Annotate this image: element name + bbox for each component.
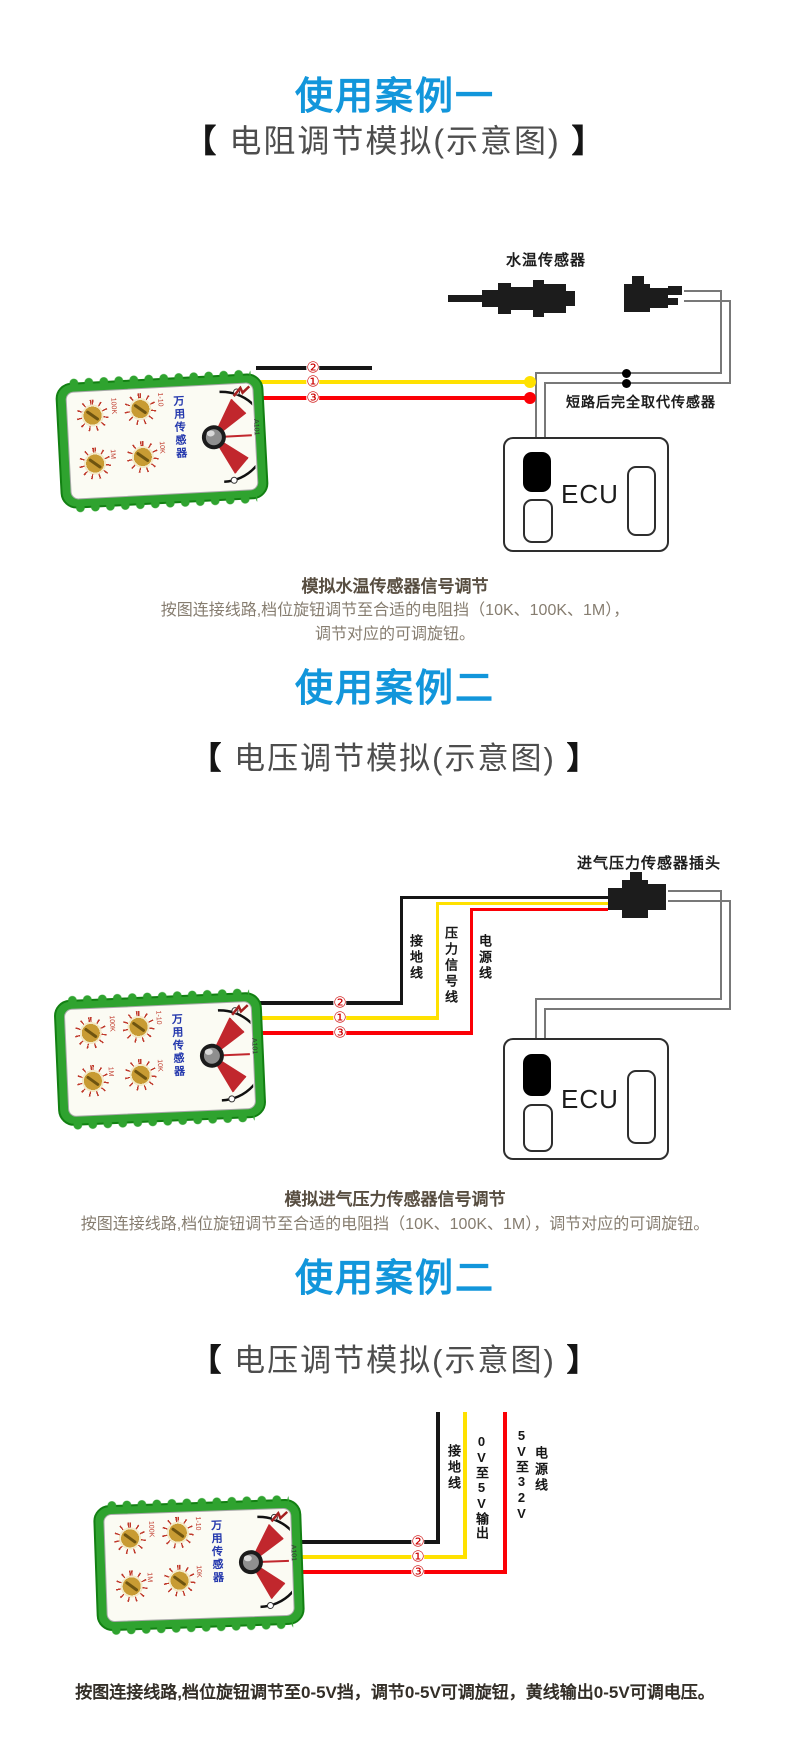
harness-plug-connector-icon <box>622 274 686 320</box>
caption1-title: 模拟水温传感器信号调节 <box>0 572 790 597</box>
simulator-device: 100K 1-10 1M 10K 万用传感器 A101 <box>55 373 269 510</box>
wire-number-3: ③ <box>411 1565 424 1580</box>
range-selector-dial <box>227 1512 292 1612</box>
bracket-close: 】 <box>566 741 599 776</box>
case2-subtitle: 【 电压调节模拟(示意图) 】 <box>0 740 790 778</box>
wire-number-2: ② <box>333 996 346 1011</box>
ecu-slot <box>627 1070 656 1144</box>
case2-subtitle-text: 电压调节模拟(示意图) <box>234 741 556 776</box>
ecu-slot <box>627 466 656 536</box>
sim-wire-yellow <box>296 1555 467 1559</box>
water-temp-sensor-connector-icon <box>448 278 598 320</box>
sensor-label: 水温传感器 <box>506 249 586 270</box>
knob-range-label: 1M <box>146 1572 153 1582</box>
ecu-label: ECU <box>561 1084 619 1115</box>
plug-label: 进气压力传感器插头 <box>577 852 721 873</box>
bracket-open: 【 <box>191 741 224 776</box>
wire-label-power: 电源线 <box>531 1446 550 1494</box>
wire-number-1: ① <box>333 1011 346 1026</box>
short-circuit-note: 短路后完全取代传感器 <box>566 392 716 412</box>
wire-label-ground: 接地线 <box>444 1444 463 1492</box>
wire-label-power: 电源线 <box>475 934 494 982</box>
sim-wire-red <box>256 396 530 400</box>
sim-wire-yellow <box>437 902 608 905</box>
wire-label-0-5v-output: 0V至5V输出 <box>472 1434 491 1540</box>
wire-number-3: ③ <box>306 391 319 406</box>
device-name: 万用传感器 <box>207 1519 225 1585</box>
harness-wire <box>684 290 722 292</box>
sim-wire-yellow <box>256 1016 439 1020</box>
sim-wire-red <box>503 1412 507 1574</box>
case1-title: 使用案例一 <box>0 76 790 118</box>
sim-wire-black <box>436 1412 440 1544</box>
ecu-slot <box>523 1104 553 1152</box>
case1-subtitle-text: 电阻调节模拟(示意图) <box>229 123 560 159</box>
caption1-line2: 调节对应的可调旋钮。 <box>0 620 790 644</box>
harness-wire <box>729 300 731 384</box>
harness-wire <box>720 890 722 1000</box>
red-terminal-dot <box>524 392 536 404</box>
wire-label-ground: 接地线 <box>406 934 425 982</box>
sim-wire-red <box>471 908 608 911</box>
ecu-box: ECU <box>503 437 669 552</box>
simulator-device: 100K 1-10 1M 10K 万用传感器 A101 <box>93 1498 305 1631</box>
case1-subtitle: 【 电阻调节模拟(示意图) 】 <box>0 122 790 160</box>
harness-wire <box>684 300 731 302</box>
pressure-sensor-plug-icon <box>606 872 672 924</box>
ecu-slot <box>523 499 553 543</box>
junction-dot <box>622 369 631 378</box>
case2-title: 使用案例二 <box>0 668 790 710</box>
device-model: A101 <box>289 1545 297 1562</box>
knob-range-label: 1M <box>109 449 116 459</box>
yellow-terminal-dot <box>524 376 536 388</box>
knob-range-label: 100K <box>108 1015 116 1032</box>
harness-wire <box>720 290 722 374</box>
device-model: A101 <box>252 419 260 436</box>
brand-logo <box>269 1511 289 1524</box>
device-name: 万用传感器 <box>170 395 189 461</box>
sim-wire-yellow <box>463 1412 467 1559</box>
sim-wire-black <box>256 1001 403 1005</box>
sim-wire-red <box>296 1570 507 1574</box>
brand-logo <box>231 385 252 398</box>
range-selector-dial <box>189 386 256 487</box>
case3-subtitle: 【 电压调节模拟(示意图) 】 <box>0 1342 790 1380</box>
harness-wire <box>729 900 731 1010</box>
wire-label-5-32v: 5V至32V <box>512 1428 531 1522</box>
case3-title: 使用案例二 <box>0 1258 790 1300</box>
case3-subtitle-text: 电压调节模拟(示意图) <box>234 1343 556 1378</box>
sim-wire-yellow <box>436 902 439 1020</box>
ecu-label: ECU <box>561 479 619 510</box>
caption3-line1: 按图连接线路,档位旋钮调节至0-5V挡，调节0-5V可调旋钮，黄线输出0-5V可… <box>0 1678 790 1703</box>
device-name: 万用传感器 <box>168 1013 187 1079</box>
harness-wire <box>668 900 731 902</box>
simulator-device: 100K 1-10 1M 10K 万用传感器 A101 <box>53 992 266 1127</box>
harness-wire <box>544 1008 731 1010</box>
knob-range-label: 100K <box>147 1521 155 1538</box>
range-selector-dial <box>188 1005 254 1106</box>
bracket-close: 】 <box>572 123 606 159</box>
ecu-pin-block <box>523 452 551 492</box>
sim-wire-red <box>470 908 473 1035</box>
brand-logo <box>230 1004 251 1017</box>
sim-wire-yellow <box>256 380 530 384</box>
bracket-open: 【 <box>184 123 218 159</box>
caption2-title: 模拟进气压力传感器信号调节 <box>0 1185 790 1210</box>
ecu-pin-block <box>523 1054 551 1096</box>
harness-wire <box>535 998 722 1000</box>
bracket-open: 【 <box>191 1343 224 1378</box>
sim-wire-black <box>400 896 403 1005</box>
knob-range-label: 10K <box>156 1059 164 1072</box>
knob-range-label: 1-10 <box>156 392 164 406</box>
harness-wire <box>668 890 722 892</box>
wire-number-2: ② <box>411 1535 424 1550</box>
caption2-line1: 按图连接线路,档位旋钮调节至合适的电阻挡（10K、100K、1M），调节对应的可… <box>0 1210 790 1234</box>
device-model: A101 <box>250 1038 258 1055</box>
knob-range-label: 1-10 <box>154 1010 162 1024</box>
knob-range-label: 10K <box>195 1565 202 1578</box>
wire-label-signal: 压力信号线 <box>441 926 460 1006</box>
knob-range-label: 100K <box>109 398 117 415</box>
wire-number-1: ① <box>306 375 319 390</box>
bracket-close: 】 <box>566 1343 599 1378</box>
wire-number-1: ① <box>411 1550 424 1565</box>
page: 使用案例一 【 电阻调节模拟(示意图) 】 水温传感器 ② ① ③ 短路后完全取… <box>0 0 790 1762</box>
harness-wire <box>544 382 731 384</box>
knob-range-label: 10K <box>158 441 166 454</box>
caption1-line1: 按图连接线路,档位旋钮调节至合适的电阻挡（10K、100K、1M）， <box>0 596 790 620</box>
sim-wire-black <box>402 896 608 899</box>
junction-dot <box>622 379 631 388</box>
sim-wire-red <box>256 1031 473 1035</box>
knob-range-label: 1M <box>107 1067 114 1077</box>
knob-range-label: 1-10 <box>194 1516 201 1530</box>
wire-number-3: ③ <box>333 1026 346 1041</box>
ecu-box: ECU <box>503 1038 669 1160</box>
